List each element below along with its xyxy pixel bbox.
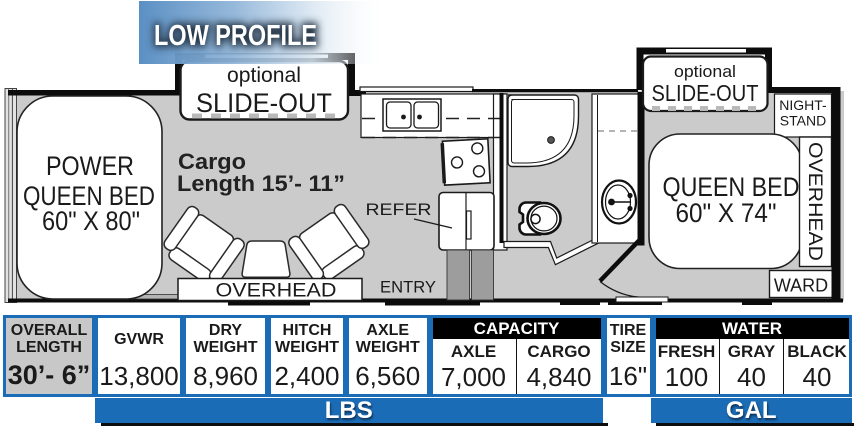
svg-text:Length 15’- 11”: Length 15’- 11”: [177, 171, 345, 196]
svg-text:STAND: STAND: [780, 113, 826, 129]
svg-text:ENTRY: ENTRY: [380, 278, 436, 297]
svg-text:optional: optional: [227, 64, 301, 87]
svg-text:WARD: WARD: [774, 276, 828, 296]
svg-text:60" X 80": 60" X 80": [42, 206, 140, 236]
svg-text:REFER: REFER: [366, 200, 432, 219]
svg-text:POWER: POWER: [46, 151, 134, 181]
svg-text:LOW PROFILE: LOW PROFILE: [154, 20, 317, 52]
svg-text:SLIDE-OUT: SLIDE-OUT: [652, 80, 759, 106]
svg-text:OVERHEAD: OVERHEAD: [216, 280, 337, 302]
svg-text:OVERHEAD: OVERHEAD: [804, 142, 825, 261]
svg-text:optional: optional: [674, 62, 736, 81]
svg-text:SLIDE-OUT: SLIDE-OUT: [196, 88, 332, 118]
svg-text:NIGHT-: NIGHT-: [779, 97, 827, 113]
svg-text:60" X 74": 60" X 74": [676, 198, 777, 228]
